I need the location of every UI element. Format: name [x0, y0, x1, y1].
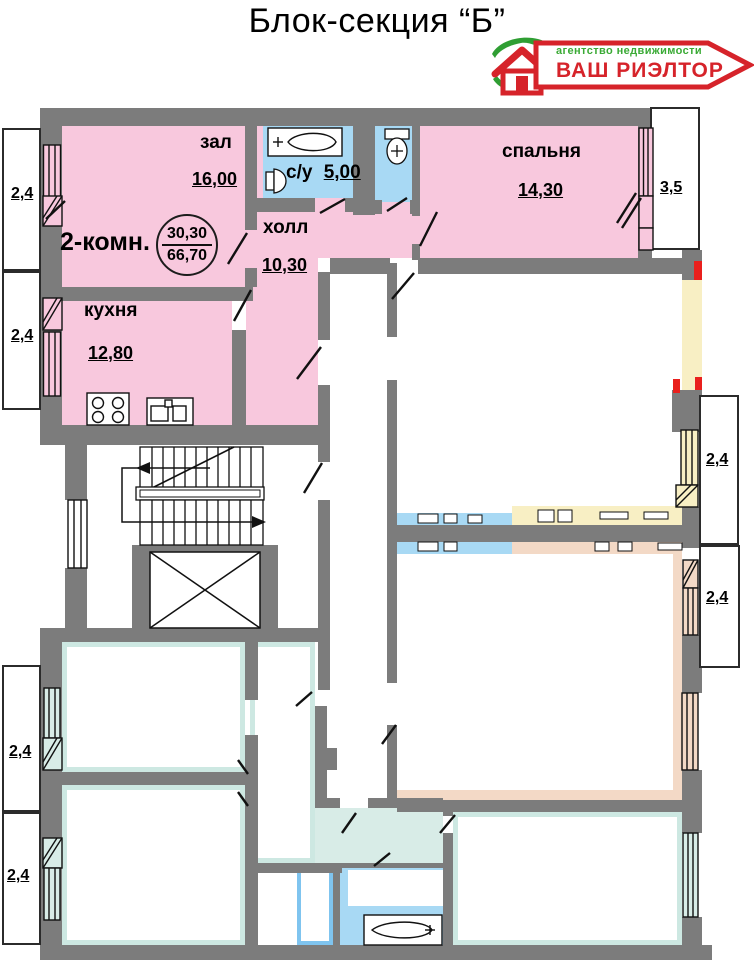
apartment-area-badge: 30,30 66,70 — [156, 214, 218, 276]
balcony-label: 2,4 — [706, 452, 728, 468]
room-label-kuhnya: кухня — [84, 301, 137, 320]
room-label-zal: зал — [200, 133, 232, 152]
floor-plan: зал 16,00 с/у 5,00 спальня 14,30 холл 10… — [0, 0, 754, 960]
apartment-type-label: 2-комн. — [60, 230, 150, 255]
balcony-label: 2,4 — [706, 590, 728, 606]
bathtub-icon — [364, 915, 442, 945]
room-area-holl: 10,30 — [262, 256, 307, 274]
window-symbol — [682, 693, 698, 770]
room-area-su: 5,00 — [324, 162, 361, 183]
fixture-marks — [418, 510, 682, 551]
room-name-su: с/у — [286, 162, 312, 183]
room-area-spalnya: 14,30 — [518, 181, 563, 199]
page: { "title": "Блок-секция “Б”", "logo": { … — [0, 0, 754, 960]
balcony-label: 3,5 — [660, 180, 682, 196]
balcony-label: 2,4 — [7, 868, 29, 884]
window-symbol — [43, 838, 62, 920]
window-symbol — [683, 560, 698, 635]
area-living: 30,30 — [162, 225, 212, 246]
bathtub-icon — [268, 128, 342, 156]
window-symbol — [68, 500, 87, 568]
balcony-label: 2,4 — [9, 744, 31, 760]
room-area-kuhnya: 12,80 — [88, 344, 133, 362]
staircase — [122, 447, 266, 545]
elevator — [150, 552, 260, 628]
room-label-su: с/у 5,00 — [286, 163, 361, 182]
balcony-label: 2,4 — [11, 186, 33, 202]
balcony-label: 2,4 — [11, 328, 33, 344]
area-total: 66,70 — [167, 246, 207, 265]
room-label-holl: холл — [263, 218, 308, 237]
kitchen-sink-icon — [147, 398, 193, 425]
window-symbol — [676, 430, 698, 507]
window-symbol — [639, 128, 653, 250]
stove-icon — [87, 393, 129, 425]
sink-icon — [266, 169, 286, 193]
window-symbol — [43, 688, 62, 770]
room-label-spalnya: спальня — [502, 142, 581, 161]
toilet-icon — [385, 129, 409, 164]
room-area-zal: 16,00 — [192, 170, 237, 188]
plan-symbols-overlay — [0, 0, 754, 960]
window-symbol — [43, 298, 62, 396]
door-leaves — [46, 193, 641, 866]
window-symbol — [683, 833, 698, 917]
